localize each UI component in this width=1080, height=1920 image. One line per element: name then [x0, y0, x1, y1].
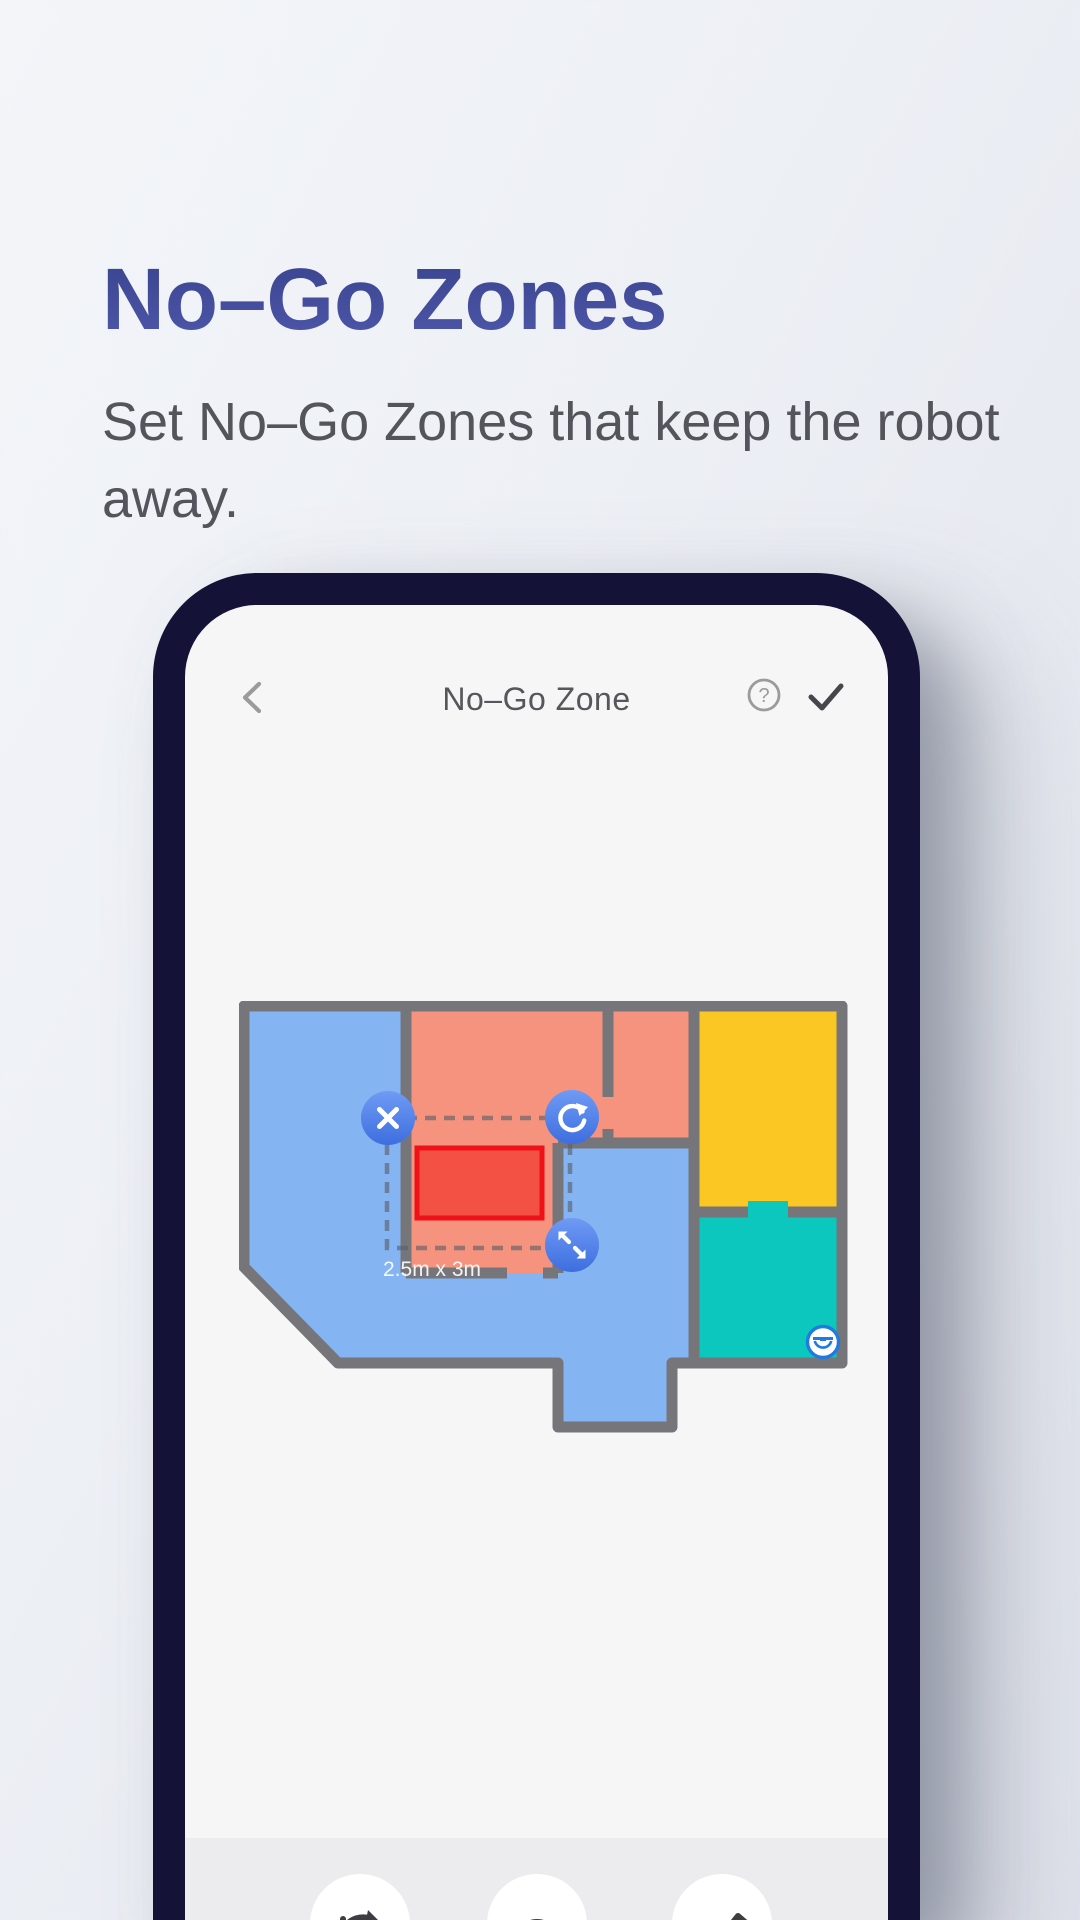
toolbar-button-3[interactable] — [672, 1874, 772, 1920]
page-title: No–Go Zones — [102, 250, 668, 350]
no-go-zone-rect[interactable] — [417, 1148, 542, 1218]
floor-map: 2.5m x 3m — [239, 1001, 852, 1433]
toolbar-button-1[interactable] — [310, 1874, 410, 1920]
zone-resize-handle[interactable] — [545, 1218, 599, 1272]
zone-size-label: 2.5m x 3m — [383, 1258, 481, 1281]
bottom-toolbar — [185, 1838, 888, 1920]
toolbar-button-2[interactable] — [487, 1874, 587, 1920]
phone-mockup: No–Go Zone ? — [153, 573, 920, 1920]
help-icon[interactable]: ? — [745, 676, 783, 714]
phone-screen: No–Go Zone ? — [185, 605, 888, 1920]
confirm-check-icon[interactable] — [801, 677, 851, 717]
robot-vacuum-icon — [808, 1327, 839, 1358]
redirect-arrow-icon — [310, 1874, 410, 1920]
circle-icon — [487, 1874, 587, 1920]
pencil-icon — [672, 1874, 772, 1920]
page-subtitle: Set No–Go Zones that keep the robot away… — [102, 384, 1032, 538]
room-study[interactable] — [694, 1006, 842, 1212]
zone-rotate-handle[interactable] — [545, 1090, 599, 1144]
zone-delete-handle[interactable] — [361, 1091, 415, 1145]
svg-text:?: ? — [758, 685, 769, 707]
bathroom-door-tab — [748, 1201, 788, 1218]
